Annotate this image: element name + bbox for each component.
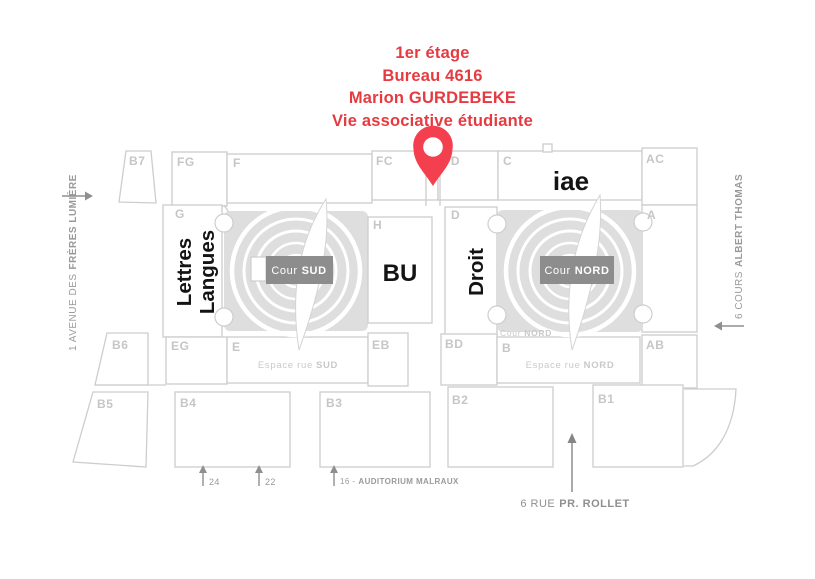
espace-rue-nord-label: Espace rueNORD bbox=[526, 360, 615, 371]
cour-nord-label: CourNORD bbox=[544, 265, 609, 277]
block-ab-label: AB bbox=[646, 338, 665, 352]
street-left-arrowhead-icon bbox=[85, 192, 93, 201]
block-d-label: D bbox=[451, 208, 460, 222]
wall-notch bbox=[634, 305, 652, 323]
wall-notch bbox=[215, 214, 233, 232]
building-iae-name: iae bbox=[553, 166, 589, 196]
block-b-label: B bbox=[502, 341, 511, 355]
building-lettres-langues-name: Lettres Langues bbox=[173, 230, 219, 314]
lettres-line: Lettres bbox=[173, 238, 196, 306]
block-b1-label: B1 bbox=[598, 392, 615, 406]
campus-map: CourSUD CourNORD CourNORD B7 FG F FC FD … bbox=[0, 0, 815, 579]
block-bd-label: BD bbox=[445, 337, 464, 351]
entrance-16-label: 16 -AUDITORIUM MALRAUX bbox=[340, 477, 459, 486]
block-b6-label: B6 bbox=[112, 338, 129, 352]
street-right-arrowhead-icon bbox=[714, 322, 722, 331]
block-eb-label: EB bbox=[372, 338, 390, 352]
street-rue-pr-rollet: 6 RUEPR. ROLLET bbox=[520, 498, 629, 510]
street-cours-albert-thomas: 6 COURSALBERT THOMAS bbox=[734, 174, 745, 319]
cour-nord-small-label: CourNORD bbox=[500, 328, 552, 338]
espace-rue-sud-label: Espace rueSUD bbox=[258, 360, 338, 371]
block-fc-label: FC bbox=[376, 154, 393, 168]
entrance-24-label: 24 bbox=[209, 477, 220, 487]
block-b7-label: B7 bbox=[129, 154, 146, 168]
entrance-22-label: 22 bbox=[265, 477, 276, 487]
block-e-label: E bbox=[232, 340, 241, 354]
location-pin-hole bbox=[423, 137, 443, 157]
block-h-label: H bbox=[373, 218, 382, 232]
cour-sud-courtyard: CourSUD bbox=[215, 199, 368, 350]
label-tab bbox=[251, 257, 266, 281]
wall-notch bbox=[488, 215, 506, 233]
block-g-label: G bbox=[175, 207, 185, 221]
block-eg-label: EG bbox=[171, 339, 190, 353]
block-ac-label: AC bbox=[646, 152, 665, 166]
block-c-notch bbox=[543, 144, 552, 152]
cour-nord-courtyard: CourNORD CourNORD bbox=[488, 195, 652, 350]
building-droit-name: Droit bbox=[465, 248, 488, 296]
block-f bbox=[227, 154, 372, 203]
building-bu-name: BU bbox=[383, 260, 418, 287]
block-c-label: C bbox=[503, 154, 512, 168]
entrance-rollet-arrowhead-icon bbox=[568, 433, 577, 443]
block-a-label: A bbox=[647, 208, 656, 222]
curved-wall bbox=[684, 389, 736, 466]
block-b2-label: B2 bbox=[452, 393, 469, 407]
street-avenue-freres-lumiere: 1 AVENUE DESFRÈRES LUMIÈRE bbox=[66, 174, 79, 351]
langues-line: Langues bbox=[196, 230, 219, 314]
block-b4-label: B4 bbox=[180, 396, 197, 410]
block-fg-label: FG bbox=[177, 155, 195, 169]
wall-notch bbox=[488, 306, 506, 324]
block-f-label: F bbox=[233, 156, 241, 170]
campus-map-page: 1er étage Bureau 4616 Marion GURDEBEKE V… bbox=[0, 0, 815, 579]
block-b3-label: B3 bbox=[326, 396, 343, 410]
block-b5-label: B5 bbox=[97, 397, 114, 411]
